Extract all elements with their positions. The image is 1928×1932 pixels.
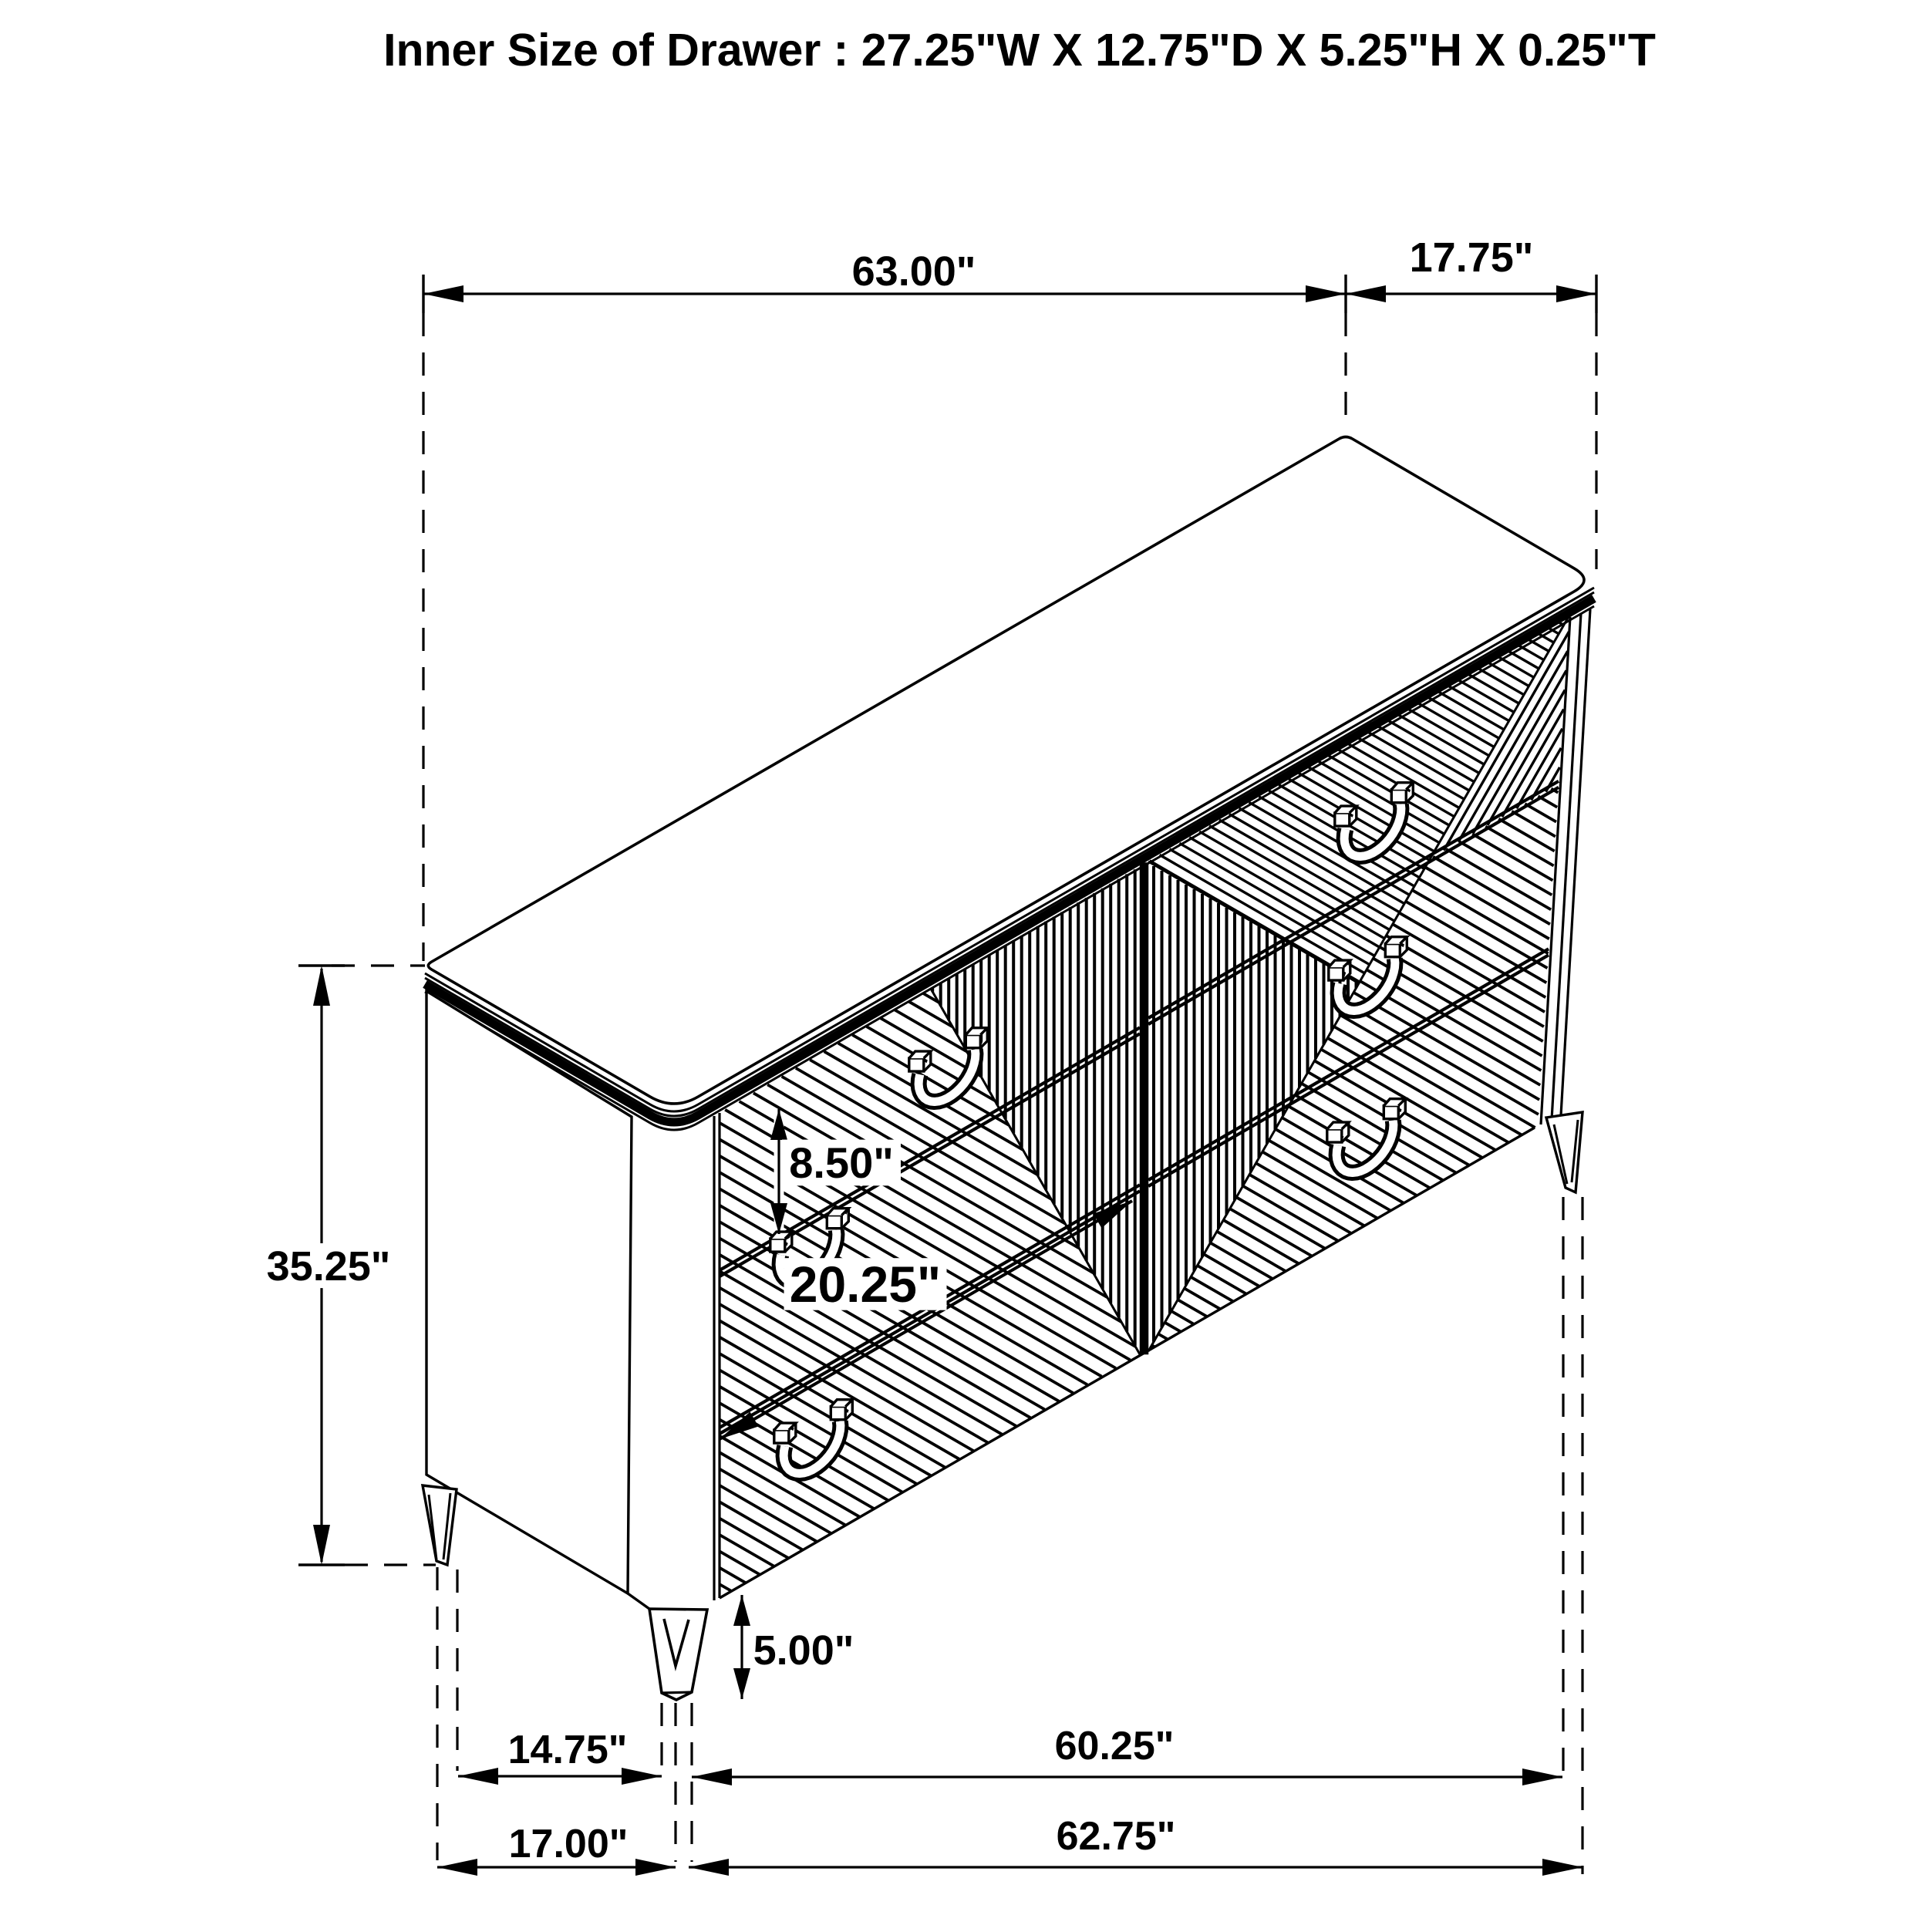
svg-text:8.50": 8.50": [789, 1138, 894, 1187]
svg-text:20.25": 20.25": [790, 1256, 941, 1313]
svg-text:35.25": 35.25": [267, 1243, 391, 1290]
svg-text:14.75": 14.75": [508, 1728, 628, 1772]
svg-text:63.00": 63.00": [852, 248, 976, 295]
svg-text:62.75": 62.75": [1057, 1814, 1176, 1859]
svg-text:17.00": 17.00": [509, 1822, 629, 1866]
svg-text:5.00": 5.00": [753, 1627, 854, 1674]
svg-text:17.75": 17.75": [1410, 234, 1534, 281]
svg-text:60.25": 60.25": [1055, 1724, 1175, 1768]
